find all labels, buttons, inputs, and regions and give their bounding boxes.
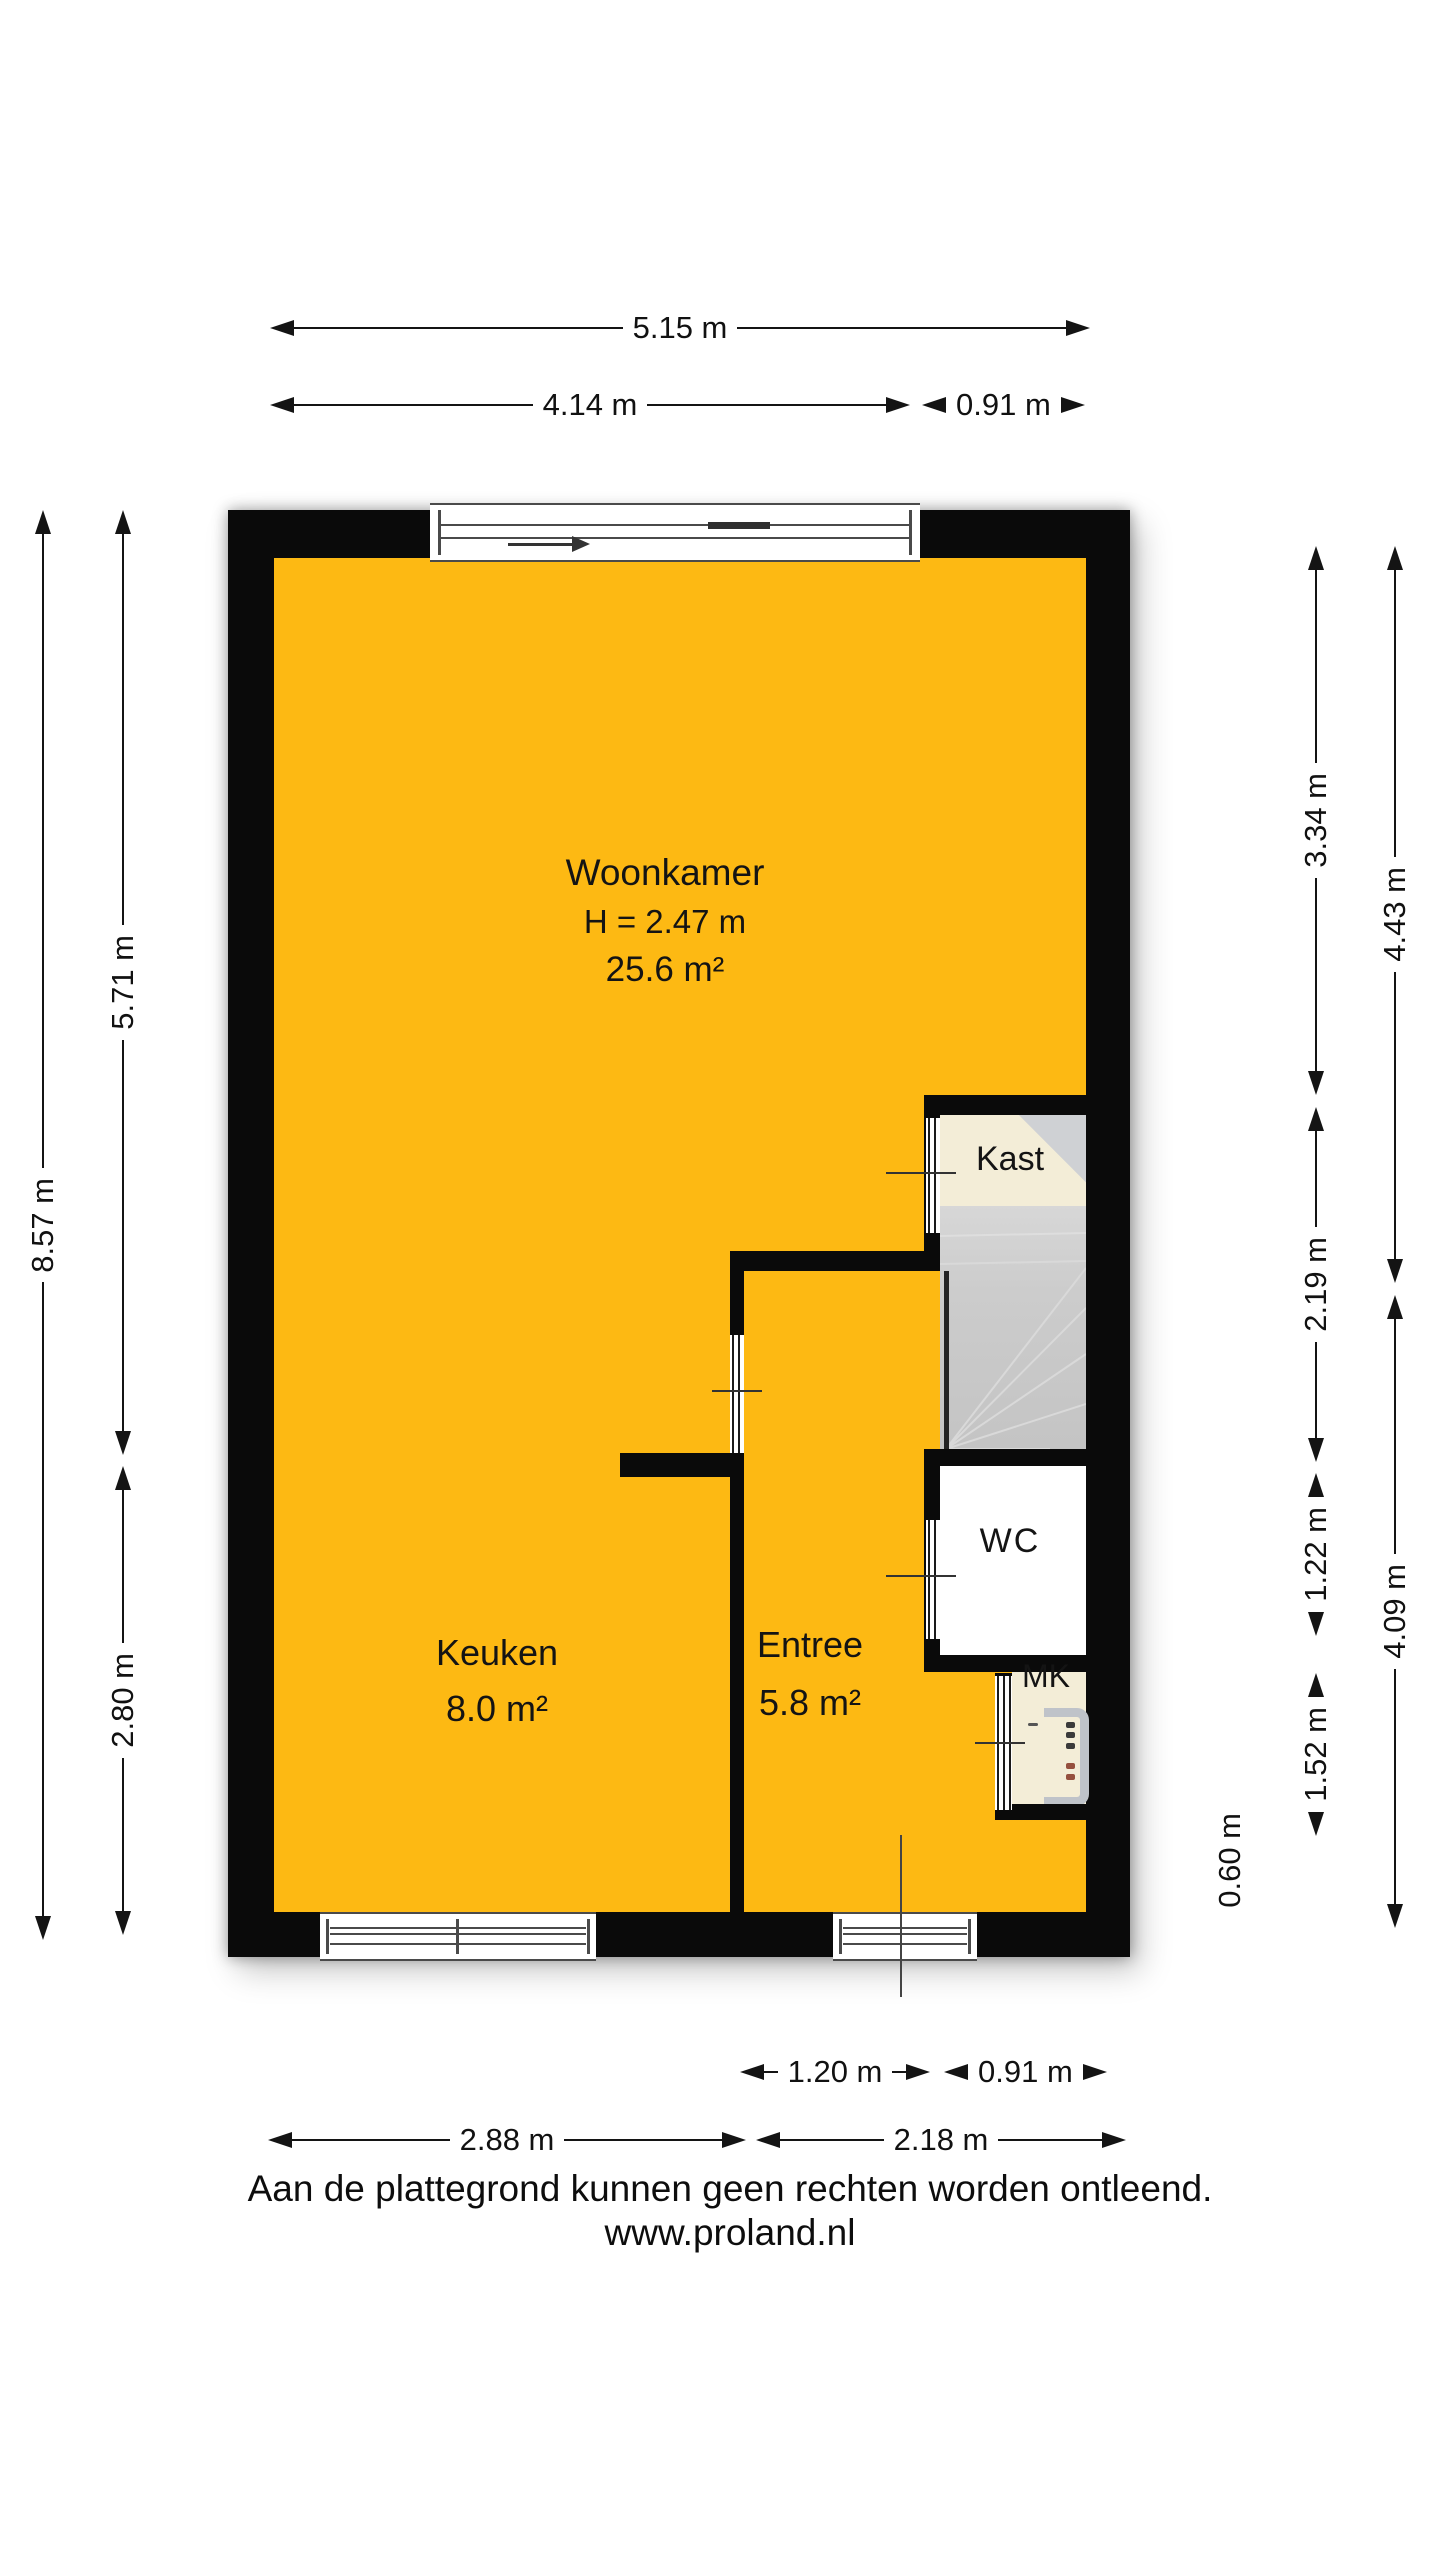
sliding-panel-marker [708,522,770,529]
boiler-connection-dot [1066,1722,1075,1728]
arrow-line [508,543,572,546]
room-label-keuken-area: 8.0 m² [446,1688,548,1730]
stair-stringer-line [944,1271,949,1449]
dimension-reference-line [900,1835,902,1997]
window-glass-line [843,1933,967,1935]
window-entree [833,1912,977,1961]
door-tick [886,1172,956,1174]
wall-kast-top [924,1095,1086,1115]
wall-keuken-stub [620,1453,744,1477]
wall-wc-top [924,1449,1086,1466]
door-tick [975,1742,1025,1744]
room-label-wc: WC [980,1522,1041,1561]
dim-bottom-inner-left: 1.20 m [740,2059,930,2085]
dim-top-total: 5.15 m [270,315,1090,341]
boiler-connection-dot [1066,1732,1075,1738]
door-woonkamer-stairs [926,1115,940,1236]
dim-left-upper: 5.71 m [110,510,136,1455]
dim-right-inner-3: 1.22 m [1303,1473,1329,1662]
window-post [968,1919,971,1954]
room-label-entree-area: 5.8 m² [759,1682,861,1724]
window-post [587,1919,590,1954]
room-label-woonkamer-area: 25.6 m² [606,950,725,990]
door-swing-arrow-icon [508,536,590,552]
boiler-valve-dot [1066,1774,1075,1780]
room-label-kast: Kast [976,1140,1044,1179]
dim-bottom-left: 2.88 m [268,2127,746,2153]
room-label-woonkamer: Woonkamer [566,852,765,894]
room-label-woonkamer-height: H = 2.47 m [584,903,746,941]
website-text: www.proland.nl [20,2212,1440,2254]
wall-entree-top [730,1251,940,1271]
window-glass [843,1927,967,1945]
dim-top-left: 4.14 m [270,392,910,418]
dim-right-outer-lower: 4.09 m [1382,1295,1408,1928]
room-label-keuken: Keuken [436,1632,558,1674]
window-top [430,503,920,562]
dim-right-inner-1: 3.34 m [1303,546,1329,1095]
window-glass [330,1927,586,1945]
door-tick [886,1575,956,1577]
room-label-entree: Entree [757,1624,863,1666]
dim-bottom-inner-right: 0.91 m [944,2059,1089,2085]
door-entree [730,1332,744,1456]
floorplan-page: Woonkamer H = 2.47 m 25.6 m² Keuken 8.0 … [0,0,1440,2560]
boiler-valve-dot [1066,1763,1075,1769]
disclaimer-text: Aan de plattegrond kunnen geen rechten w… [20,2168,1440,2210]
staircase [940,1206,1086,1449]
window-keuken [320,1912,596,1961]
dim-right-inner-2: 2.19 m [1303,1107,1329,1462]
window-post [839,1919,842,1954]
window-glass-line [330,1933,586,1935]
dim-bottom-right: 2.18 m [756,2127,1126,2153]
room-label-mk: MK [1022,1658,1070,1695]
door-tick [712,1390,762,1392]
staircase-treads-icon [940,1206,1086,1449]
dim-right-inner-4: 1.52 m [1303,1673,1329,1928]
boiler-mark [1028,1723,1038,1726]
arrow-head [572,536,590,552]
window-post [326,1919,329,1954]
door-wc [926,1517,940,1642]
dim-left-lower: 2.80 m [110,1466,136,1935]
dim-right-small: 0.60 m [1208,1782,1252,1938]
dim-left-total: 8.57 m [30,510,56,1940]
dim-top-right: 0.91 m [922,392,1102,418]
dim-right-outer-upper: 4.43 m [1382,546,1408,1283]
boiler-connection-dot [1066,1743,1075,1749]
